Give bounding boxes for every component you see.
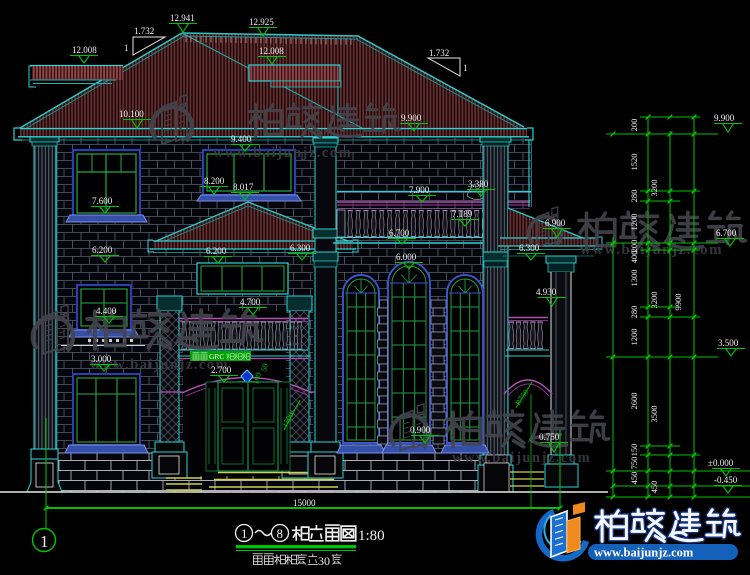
svg-text:1: 1 <box>124 43 129 53</box>
svg-text:12.008: 12.008 <box>72 45 97 55</box>
svg-text:450: 450 <box>629 472 639 485</box>
svg-text:1.732: 1.732 <box>429 48 449 58</box>
svg-text:7.600: 7.600 <box>92 196 113 206</box>
svg-text:6.000: 6.000 <box>396 252 417 262</box>
svg-text:8.200: 8.200 <box>204 176 225 186</box>
svg-text:0.750: 0.750 <box>539 432 560 442</box>
svg-text:1200: 1200 <box>629 214 639 231</box>
svg-text:12.941: 12.941 <box>170 13 195 23</box>
svg-text:4.930: 4.930 <box>536 287 557 297</box>
svg-text:8.017: 8.017 <box>233 182 254 192</box>
svg-text:8: 8 <box>277 526 284 541</box>
svg-text:1: 1 <box>463 63 468 73</box>
svg-text:400: 400 <box>629 251 639 264</box>
svg-text:9.900: 9.900 <box>714 113 735 123</box>
svg-text:200: 200 <box>629 119 639 132</box>
svg-text:12.008: 12.008 <box>259 46 284 56</box>
svg-text:150: 150 <box>629 444 639 457</box>
svg-text:1: 1 <box>40 532 49 551</box>
svg-text:1520: 1520 <box>629 154 639 171</box>
svg-text:200: 200 <box>629 240 639 253</box>
svg-text:12.925: 12.925 <box>249 17 274 27</box>
svg-text:3.380: 3.380 <box>468 179 489 189</box>
svg-text:GRC: GRC <box>209 352 224 361</box>
svg-text:280: 280 <box>629 306 639 319</box>
svg-text:±0.000: ±0.000 <box>708 458 734 468</box>
svg-text:1: 1 <box>241 526 248 541</box>
svg-text:4.400: 4.400 <box>96 306 117 316</box>
svg-text:15000: 15000 <box>293 498 316 508</box>
svg-text:450: 450 <box>649 481 659 494</box>
svg-text:1:80: 1:80 <box>358 528 385 544</box>
svg-text:www.baijunjz.com: www.baijunjz.com <box>213 145 352 161</box>
svg-text:6.700: 6.700 <box>716 228 737 238</box>
svg-text:-0.450: -0.450 <box>714 475 738 485</box>
svg-text:10.100: 10.100 <box>119 109 144 119</box>
svg-text:3200: 3200 <box>649 180 659 197</box>
svg-text:3200: 3200 <box>649 292 659 309</box>
svg-text:6.300: 6.300 <box>290 243 311 253</box>
svg-text:2.700: 2.700 <box>211 365 232 375</box>
svg-text:1300: 1300 <box>629 270 639 287</box>
svg-text:3.000: 3.000 <box>91 354 112 364</box>
svg-text:30: 30 <box>318 554 330 568</box>
svg-text:6.900: 6.900 <box>545 218 566 228</box>
svg-text:7.189: 7.189 <box>452 209 473 219</box>
svg-text:750: 750 <box>629 457 639 470</box>
svg-text:6.700: 6.700 <box>389 228 410 238</box>
svg-text:0.900: 0.900 <box>410 425 431 435</box>
svg-text:3500: 3500 <box>649 406 659 423</box>
svg-text:6.300: 6.300 <box>519 243 540 253</box>
svg-text:7.900: 7.900 <box>409 185 430 195</box>
svg-text:6.200: 6.200 <box>206 246 227 256</box>
svg-text:6.200: 6.200 <box>92 245 113 255</box>
svg-text:3.500: 3.500 <box>718 338 739 348</box>
svg-text:www.baijunjz.com: www.baijunjz.com <box>594 546 694 560</box>
svg-text:4.700: 4.700 <box>240 297 261 307</box>
svg-text:9.400: 9.400 <box>231 134 252 144</box>
svg-text:1200: 1200 <box>629 329 639 346</box>
svg-text:9900: 9900 <box>673 294 683 311</box>
svg-text:1.732: 1.732 <box>134 26 154 36</box>
svg-text:www.baijunjz.com: www.baijunjz.com <box>452 450 591 466</box>
svg-text:2600: 2600 <box>629 393 639 410</box>
svg-text:280: 280 <box>629 190 639 203</box>
svg-text:9.900: 9.900 <box>401 113 422 123</box>
